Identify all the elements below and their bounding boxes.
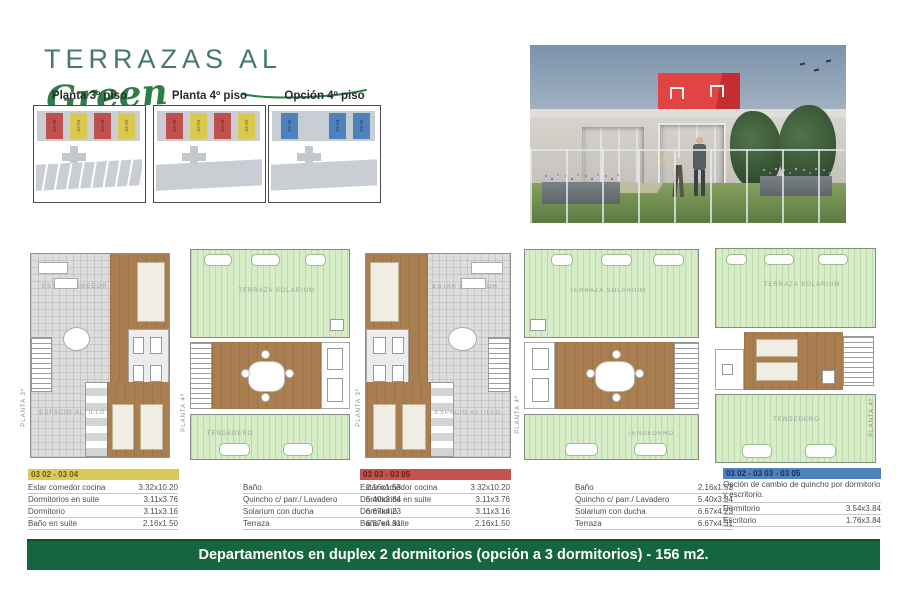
unit-strip: 03 05 03 04 03 03 03 02: [157, 111, 260, 141]
floorplan-terrace-0204: TERRAZA SOLARIUM TENDEDERO: [190, 249, 350, 460]
bed: [370, 262, 400, 322]
unit-cell: 03 04: [190, 113, 207, 139]
plan-side-label: PLANTA 3º: [21, 388, 27, 427]
dims-table-0305: 03 03 - 03 05 Estar comedor cocina 3.32x…: [360, 469, 678, 480]
fence-posts: [530, 149, 846, 223]
wardrobe-band: [107, 382, 169, 392]
kitchen: [85, 382, 108, 457]
unit-number: 03 02: [359, 120, 364, 132]
lounger: [601, 254, 632, 266]
lower-units-band: [36, 159, 142, 191]
room-label: Escritorio: [723, 515, 756, 526]
unit-number: 03 04: [76, 120, 81, 132]
bed: [137, 262, 165, 322]
bed: [402, 404, 425, 451]
page-title: TERRAZAS AL Green: [44, 44, 384, 96]
table-row: Estar comedor cocina 3.32x10.20: [28, 482, 178, 494]
table-header: 03 02 - 03 04: [28, 469, 179, 480]
room-label: Baño: [243, 482, 262, 493]
keyplan-title: Planta 4º piso: [153, 90, 266, 102]
bed: [112, 404, 134, 451]
lounger: [219, 443, 249, 457]
chair: [241, 369, 250, 378]
room-dimensions: 3.11x3.76: [143, 494, 178, 505]
room-label-tendedero: TENDEDERO: [773, 417, 820, 423]
bathroom: [321, 342, 350, 410]
lounger: [805, 444, 836, 458]
table-row: Baño 2.16x1.53: [575, 482, 733, 494]
room-dimensions: 3.11x3.16: [143, 506, 178, 517]
room-label: Solarium con ducha: [575, 506, 646, 517]
room-label: Dormitorio: [360, 506, 397, 517]
floorplan-terrace-option: TERRAZA SOLARIUM TENDEDERO: [710, 248, 881, 463]
table-row: Estar comedor cocina 3.32x10.20: [360, 482, 510, 494]
plan-side-label: PLANTA 3º: [356, 388, 362, 427]
chair: [635, 369, 644, 378]
tendedero: TENDEDERO: [190, 414, 350, 460]
room-label: Baño: [575, 482, 594, 493]
room-dimensions: 3.32x10.20: [138, 482, 178, 493]
unit-strip: 03 05 03 04 03 03 03 02: [37, 111, 140, 141]
table-row: Baño en suite 2.16x1.50: [28, 518, 178, 530]
lower-units-band: [156, 159, 262, 191]
unit-cell: 03 03: [214, 113, 231, 139]
bedroom-2: [107, 392, 169, 457]
room-label: Terraza: [243, 518, 270, 529]
quincho-table: [595, 361, 635, 393]
table-row: Dormitorios en suite 3.11x3.76: [28, 494, 178, 506]
plan-side-label: PLANTA 4º: [869, 398, 875, 437]
bathroom-fixture: [822, 370, 836, 384]
lounger: [726, 254, 747, 265]
table-row: Dormitorios en suite 3.11x3.76: [360, 494, 510, 506]
lounger: [634, 443, 667, 457]
chair: [285, 369, 294, 378]
lounger: [251, 254, 280, 266]
room-label: Dormitorios en suite: [28, 494, 99, 505]
floorplan-terrace-0305: TERRAZA SOLARIUM TENDEDERO: [524, 249, 699, 460]
room-label: Dormitorio: [28, 506, 65, 517]
table-row: Dormitorio 3.11x3.16: [28, 506, 178, 518]
room-label-altillo: ESPACIO ALTILLO: [39, 410, 105, 416]
unit-cell: 03 03: [329, 113, 346, 139]
option-note: Opción de cambio de quincho por dormitor…: [723, 479, 881, 503]
bathroom: [524, 342, 556, 410]
table-row: Solarium con ducha 6.67x4.23: [575, 506, 733, 518]
brochure-page: TERRAZAS AL Green Planta 3º piso 03 05 0…: [0, 0, 900, 600]
room-label: Quincho c/ parr./ Lavadero: [575, 494, 669, 505]
unit-cell: 03 05: [281, 113, 298, 139]
quincho: [556, 342, 675, 410]
table-left-column: Estar comedor cocina 3.32x10.20 Dormitor…: [28, 482, 178, 530]
unit-cell: 03 03: [94, 113, 111, 139]
shower: [330, 319, 344, 331]
table-header: 03 03 - 03 05: [360, 469, 511, 480]
keyplan-drawing: 03 05 03 04 03 03 03 02: [33, 105, 146, 203]
lounger: [653, 254, 684, 266]
unit-number: 03 03: [220, 120, 225, 132]
unit-cell: 03 02: [238, 113, 255, 139]
unit-number: 03 05: [287, 120, 292, 132]
unit-number: 03 02: [244, 120, 249, 132]
table-row: Escritorio 1.76x3.84: [723, 515, 881, 527]
table-header: 03 02 - 03 03 - 03 05: [723, 468, 881, 479]
bedroom-option: [744, 332, 843, 390]
logo-mark-icon: [670, 87, 684, 99]
lounger: [764, 254, 795, 265]
unit-number: 03 03: [335, 120, 340, 132]
bed: [373, 404, 396, 451]
tendedero: TENDEDERO: [715, 394, 876, 463]
terrace-solarium: TERRAZA SOLARIUM: [190, 249, 350, 338]
table-row: Quincho c/ parr./ Lavadero 5.40x3.84: [575, 494, 733, 506]
lounger: [742, 444, 773, 458]
unit-cell: 03 04: [70, 113, 87, 139]
room-label-tendedero: TENDEDERO: [627, 431, 674, 437]
room-label: Baño en suite: [28, 518, 77, 529]
unit-number: 03 05: [52, 120, 57, 132]
quincho-table: [248, 361, 285, 393]
room-label: Dormitorio: [723, 503, 760, 514]
lounger: [565, 443, 598, 457]
room-dimensions: 1.76x3.84: [846, 515, 881, 526]
floorplan-apartment-0305: ESTAR COMEDOR ESPACIO ALTILLO: [365, 253, 511, 458]
room-dimensions: 3.11x3.16: [475, 506, 510, 517]
plan-side-label: PLANTA 4º: [181, 393, 187, 432]
room-label-solarium: TERRAZA SOLARIUM: [569, 288, 646, 294]
bedroom-suite: [366, 254, 428, 329]
unit-number: 03 02: [124, 120, 129, 132]
table-row: Dormitorio 3.11x3.16: [360, 506, 510, 518]
lounger: [305, 254, 326, 266]
bedroom-suite: [110, 254, 169, 329]
desk: [722, 364, 733, 375]
room-label: Solarium con ducha: [243, 506, 314, 517]
room-label-tendedero: TENDEDERO: [207, 431, 254, 437]
room-label-solarium: TERRAZA SOLARIUM: [764, 282, 841, 288]
unit-number: 03 05: [172, 120, 177, 132]
table-rows: Dormitorio 3.54x3.84 Escritorio 1.76x3.8…: [723, 503, 881, 527]
unit-cell: 03 02: [118, 113, 135, 139]
logo-mark-icon: [710, 85, 724, 97]
unit-cell: 03 05: [166, 113, 183, 139]
dims-table-0204: 03 02 - 03 04 Estar comedor cocina 3.32x…: [28, 469, 346, 480]
tendedero: TENDEDERO: [524, 414, 699, 460]
plan-side-label: PLANTA 4º: [515, 395, 521, 434]
lounger: [551, 254, 574, 266]
bedroom-2: [366, 392, 431, 457]
chair: [612, 350, 621, 359]
room-label: Dormitorios en suite: [360, 494, 431, 505]
floorplan-apartment-0204: ESTAR COMEDOR ESPACIO ALTILLO: [30, 253, 170, 458]
table-left-column: Estar comedor cocina 3.32x10.20 Dormitor…: [360, 482, 510, 530]
terrace-solarium: TERRAZA SOLARIUM: [715, 248, 876, 328]
chair: [586, 369, 595, 378]
chair: [612, 393, 621, 402]
room-label-altillo: ESPACIO ALTILLO: [435, 410, 501, 416]
project-name: TERRAZAS AL: [44, 44, 282, 74]
keyplan-title: Planta 3º piso: [33, 90, 146, 102]
room-label: Estar comedor cocina: [28, 482, 105, 493]
kitchen: [429, 382, 453, 457]
stairs: [675, 342, 700, 410]
bed: [140, 404, 162, 451]
room-label-solarium: TERRAZA SOLARIUM: [238, 288, 315, 294]
bed: [756, 362, 798, 381]
stairs: [488, 337, 510, 392]
sofa: [461, 278, 485, 288]
chair: [261, 350, 270, 359]
bed: [756, 339, 798, 358]
room-label: Quincho c/ parr./ Lavadero: [243, 494, 337, 505]
room-dimensions: 3.32x10.20: [470, 482, 510, 493]
room-label: Baño en suite: [360, 518, 409, 529]
rendering-photo: [530, 45, 846, 223]
chair: [261, 393, 270, 402]
unit-cell: 03 02: [353, 113, 370, 139]
keyplan-drawing: 03 05 03 03 03 02: [268, 105, 381, 203]
unit-number: 03 03: [100, 120, 105, 132]
stairs: [31, 337, 52, 392]
stairs: [843, 336, 874, 385]
room-label: Estar comedor cocina: [360, 482, 437, 493]
lower-units-band: [271, 159, 377, 191]
unit-strip: 03 05 03 03 03 02: [272, 111, 375, 141]
keyplan-drawing: 03 05 03 04 03 03 03 02: [153, 105, 266, 203]
keyplan-title: Opción 4º piso: [268, 90, 381, 102]
footer-banner: Departamentos en duplex 2 dormitorios (o…: [27, 539, 880, 570]
lounger: [818, 254, 849, 265]
table-row: Dormitorio 3.54x3.84: [723, 503, 881, 515]
escritorio: [715, 349, 744, 390]
room-dimensions: 3.11x3.76: [475, 494, 510, 505]
table-right-column: Baño 2.16x1.53 Quincho c/ parr./ Lavader…: [575, 482, 733, 530]
room-dimensions: 2.16x1.50: [143, 518, 178, 529]
floorplans-row: ESTAR COMEDOR ESPACIO ALTILLO P: [0, 248, 900, 466]
table-row: Baño en suite 2.16x1.50: [360, 518, 510, 530]
table-row: Terraza 6.67x4.31: [575, 518, 733, 530]
terrace-solarium: TERRAZA SOLARIUM: [524, 249, 699, 338]
room-dimensions: 2.16x1.50: [475, 518, 510, 529]
banner-text: Departamentos en duplex 2 dormitorios (o…: [27, 541, 880, 569]
unit-number: 03 04: [196, 120, 201, 132]
dims-table-option: 03 02 - 03 03 - 03 05 Opción de cambio d…: [723, 468, 881, 527]
wardrobe-band: [366, 382, 431, 392]
sofa: [54, 278, 77, 288]
sofa: [471, 262, 503, 274]
stairs: [190, 342, 212, 410]
shower: [530, 319, 546, 331]
sofa: [38, 262, 68, 274]
room-dimensions: 3.54x3.84: [846, 503, 881, 514]
quincho: [212, 342, 321, 410]
unit-cell: 03 05: [46, 113, 63, 139]
lounger: [283, 443, 313, 457]
roof-red-volume: [658, 73, 740, 113]
lounger: [204, 254, 233, 266]
room-label: Terraza: [575, 518, 602, 529]
